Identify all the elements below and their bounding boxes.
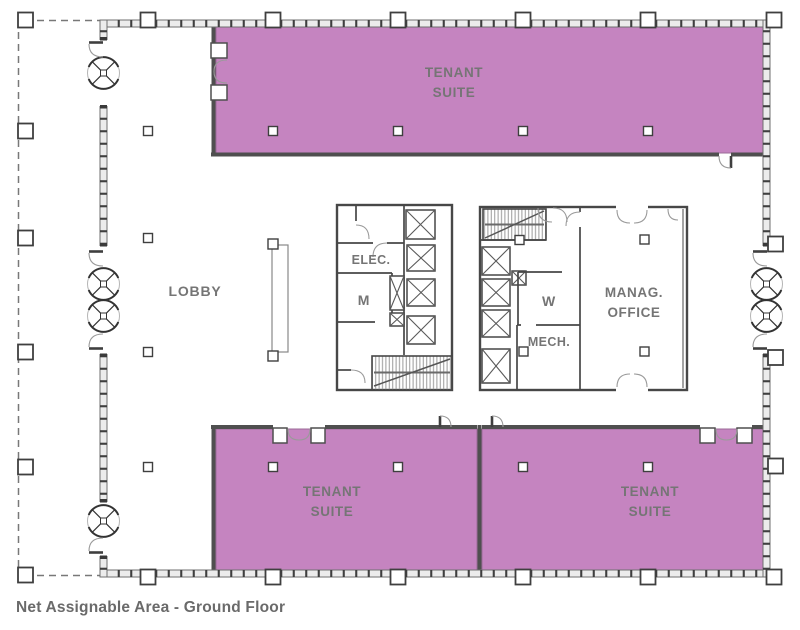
- elevator-icon: [482, 279, 510, 306]
- column-marker: [640, 347, 649, 356]
- elevator-icon: [482, 349, 510, 383]
- column-marker: [519, 347, 528, 356]
- column-marker: [18, 345, 33, 360]
- suite-entry-notch: [211, 85, 227, 100]
- column-marker: [767, 570, 782, 585]
- exterior-wall-bottom: [100, 570, 770, 577]
- revolving-door-icon: [751, 300, 783, 332]
- floor-plan-drawing: LOBBY TENANT SUITE TENANT SUITE TENANT S…: [0, 0, 800, 630]
- suite-entry-notch: [700, 428, 715, 443]
- suite-entry-notch: [311, 428, 325, 443]
- elevator-icon: [407, 279, 435, 306]
- column-marker: [18, 568, 33, 583]
- column-marker: [641, 570, 656, 585]
- tenant-suite-bottom-right-area: [482, 429, 763, 570]
- column-marker: [768, 237, 783, 252]
- column-marker: [519, 463, 528, 472]
- elevator-icon: [512, 271, 526, 285]
- column-marker: [394, 127, 403, 136]
- tenant-suite-bl-label-line1: TENANT: [303, 484, 361, 499]
- tenant-suite-top-area: [216, 27, 763, 153]
- management-office-label-line2: OFFICE: [607, 305, 660, 320]
- column-marker: [144, 348, 153, 357]
- column-marker: [18, 231, 33, 246]
- mens-restroom-label: M: [358, 292, 370, 308]
- suite-entry-notch: [211, 43, 227, 58]
- column-marker: [266, 13, 281, 28]
- column-marker: [644, 463, 653, 472]
- column-marker: [144, 127, 153, 136]
- elevator-icon: [406, 210, 435, 239]
- column-marker: [767, 13, 782, 28]
- tenant-suite-top-label-line2: SUITE: [433, 85, 476, 100]
- mechanical-room-label: MECH.: [528, 335, 570, 349]
- column-marker: [519, 127, 528, 136]
- stair-icon: [372, 356, 452, 390]
- core-center: [337, 205, 452, 390]
- column-marker: [644, 127, 653, 136]
- column-marker: [516, 570, 531, 585]
- lobby-label: LOBBY: [169, 283, 222, 299]
- suite-entry-notch: [273, 428, 287, 443]
- tenant-suite-top-label-line1: TENANT: [425, 65, 483, 80]
- tenant-suite-br-label-line2: SUITE: [629, 504, 672, 519]
- elevator-icon: [482, 247, 510, 275]
- elevator-icon: [390, 313, 404, 326]
- revolving-door-icon: [88, 300, 120, 332]
- column-marker: [268, 351, 278, 361]
- elevator-icon: [482, 310, 510, 337]
- column-marker: [269, 127, 278, 136]
- floor-plan: LOBBY TENANT SUITE TENANT SUITE TENANT S…: [0, 0, 800, 630]
- column-marker: [641, 13, 656, 28]
- column-marker: [141, 13, 156, 28]
- revolving-door-icon: [751, 268, 783, 300]
- column-marker: [640, 235, 649, 244]
- tenant-suite-bl-label-line2: SUITE: [311, 504, 354, 519]
- electrical-room-label: ELEC.: [352, 253, 391, 267]
- column-marker: [516, 13, 531, 28]
- column-marker: [18, 13, 33, 28]
- revolving-door-icon: [88, 505, 120, 537]
- elevator-icon: [407, 245, 435, 271]
- revolving-door-icon: [88, 268, 120, 300]
- tenant-suite-br-label-line1: TENANT: [621, 484, 679, 499]
- column-marker: [266, 570, 281, 585]
- column-marker: [144, 463, 153, 472]
- suite-entry-notch: [737, 428, 752, 443]
- column-marker: [18, 124, 33, 139]
- management-office-label-line1: MANAG.: [605, 285, 663, 300]
- elevator-icon: [407, 316, 435, 344]
- column-marker: [269, 463, 278, 472]
- column-marker: [141, 570, 156, 585]
- tenant-suite-bottom-left-area: [216, 429, 477, 570]
- column-marker: [391, 13, 406, 28]
- column-marker: [394, 463, 403, 472]
- elevator-icon: [390, 276, 404, 310]
- column-marker: [144, 234, 153, 243]
- column-marker: [768, 459, 783, 474]
- exterior-wall-top: [100, 20, 770, 27]
- plan-caption: Net Assignable Area - Ground Floor: [16, 599, 285, 616]
- womens-restroom-label: W: [542, 293, 556, 309]
- column-marker: [768, 350, 783, 365]
- column-marker: [18, 460, 33, 475]
- column-marker: [391, 570, 406, 585]
- column-marker: [515, 236, 524, 245]
- column-marker: [268, 239, 278, 249]
- revolving-door-icon: [88, 57, 120, 89]
